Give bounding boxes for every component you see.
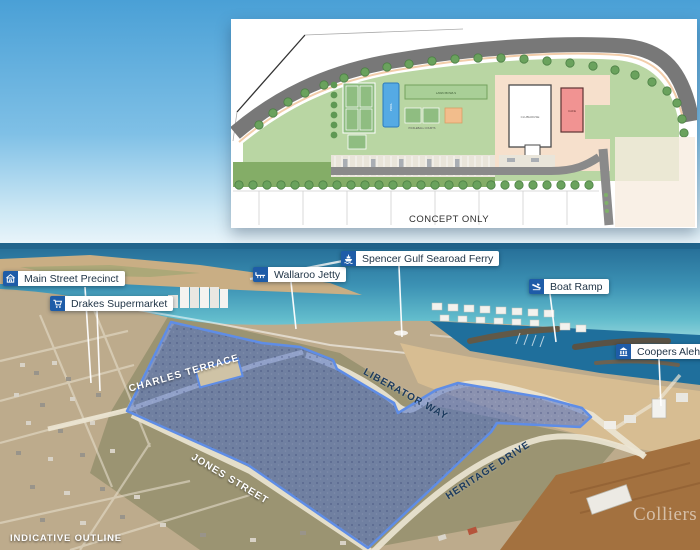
lawn-bowls-green: LAWN BOWLS [405,85,487,99]
callout-coopers-alehouse: Coopers Alehouse [616,344,700,359]
storefront-icon [3,271,18,286]
pool-label: POOL [389,103,393,112]
east-verge [615,137,695,227]
concept-plan-art: POOL LAWN BOWLS PICKLEBALL COURTS CLUBHO… [231,19,697,228]
access-road [603,149,609,225]
callout-main-street-precinct: Main Street Precinct [3,271,125,286]
callout-label: Main Street Precinct [18,271,125,286]
callout-wallaroo-jetty: Wallaroo Jetty [253,267,346,282]
east-lawn [585,105,619,139]
alehouse-icon [616,344,631,359]
cafe-label: CAFE [568,109,576,113]
horizon [0,243,700,249]
boat-ramp-icon [529,279,544,294]
half-court [445,108,462,123]
indicative-outline-legend: INDICATIVE OUTLINE [10,533,122,544]
colliers-watermark: Colliers [633,504,697,526]
callout-label: Drakes Supermarket [65,296,173,311]
callout-boat-ramp: Boat Ramp [529,279,609,294]
marketing-composite: POOL LAWN BOWLS PICKLEBALL COURTS CLUBHO… [0,0,700,550]
jetty-icon [253,267,268,282]
callout-drakes-supermarket: Drakes Supermarket [50,296,173,311]
callout-spencer-gulf-searoad-ferry: Spencer Gulf Searoad Ferry [341,251,499,266]
callout-label: Coopers Alehouse [631,344,700,359]
ferry-icon [341,251,356,266]
cafe-building: CAFE [561,88,583,132]
callout-label: Wallaroo Jetty [268,267,346,282]
concept-plan-inset: POOL LAWN BOWLS PICKLEBALL COURTS CLUBHO… [231,19,697,228]
callout-label: Spencer Gulf Searoad Ferry [356,251,499,266]
cart-icon [50,296,65,311]
lawn-bowls-label: LAWN BOWLS [436,91,456,95]
clubhouse-label: CLUBHOUSE [521,115,540,119]
concept-caption: CONCEPT ONLY [409,214,489,225]
pickleball-label: PICKLEBALL COURTS [408,126,435,130]
callout-label: Boat Ramp [544,279,609,294]
pool: POOL [383,83,399,127]
clubhouse-building: CLUBHOUSE [509,85,551,157]
